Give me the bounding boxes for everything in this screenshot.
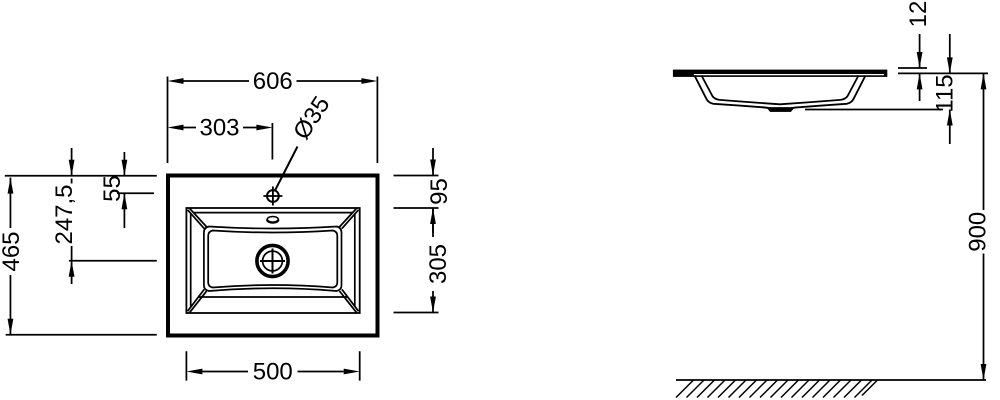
- svg-text:Ø35: Ø35: [288, 92, 335, 145]
- svg-text:305: 305: [425, 244, 452, 284]
- svg-text:900: 900: [964, 212, 991, 252]
- svg-text:12: 12: [905, 1, 932, 28]
- svg-text:95: 95: [426, 178, 453, 205]
- svg-text:500: 500: [253, 358, 293, 385]
- svg-text:247,5: 247,5: [51, 184, 78, 244]
- svg-text:55: 55: [99, 175, 126, 202]
- svg-text:115: 115: [932, 74, 959, 112]
- svg-text:465: 465: [0, 231, 25, 271]
- svg-text:606: 606: [253, 68, 293, 95]
- svg-text:303: 303: [199, 115, 239, 142]
